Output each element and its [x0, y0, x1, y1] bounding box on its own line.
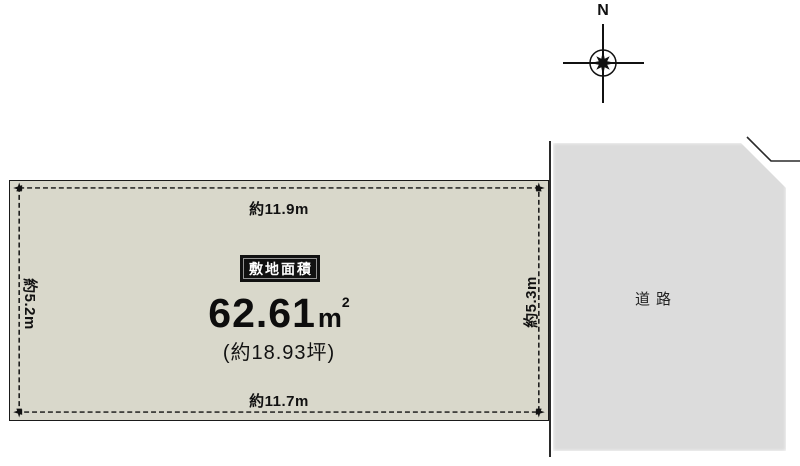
dimension-label-bottom: 約11.7m	[10, 390, 548, 411]
land-plot: 約11.9m 約11.7m 約5.2m 約5.3m 敷地面積 62.61m2 (…	[9, 180, 549, 421]
area-badge: 敷地面積	[240, 255, 320, 282]
area-unit-exponent: 2	[342, 294, 350, 310]
boundary-line	[549, 141, 551, 457]
area-value: 62.61m2	[10, 293, 548, 334]
compass-star-icon	[553, 0, 653, 115]
area-tsubo: (約18.93坪)	[10, 336, 548, 365]
dimension-label-top: 約11.9m	[10, 198, 548, 219]
site-plan-diagram: N 約11.9m 約11.7m 約5.2m 約5.3m 敷地面積 6	[0, 0, 800, 466]
road-label: 道路	[613, 288, 693, 309]
area-number: 62.61	[208, 290, 316, 336]
road-corner-line	[744, 132, 800, 166]
area-unit: m	[318, 303, 342, 333]
compass-rose: N	[553, 0, 653, 115]
